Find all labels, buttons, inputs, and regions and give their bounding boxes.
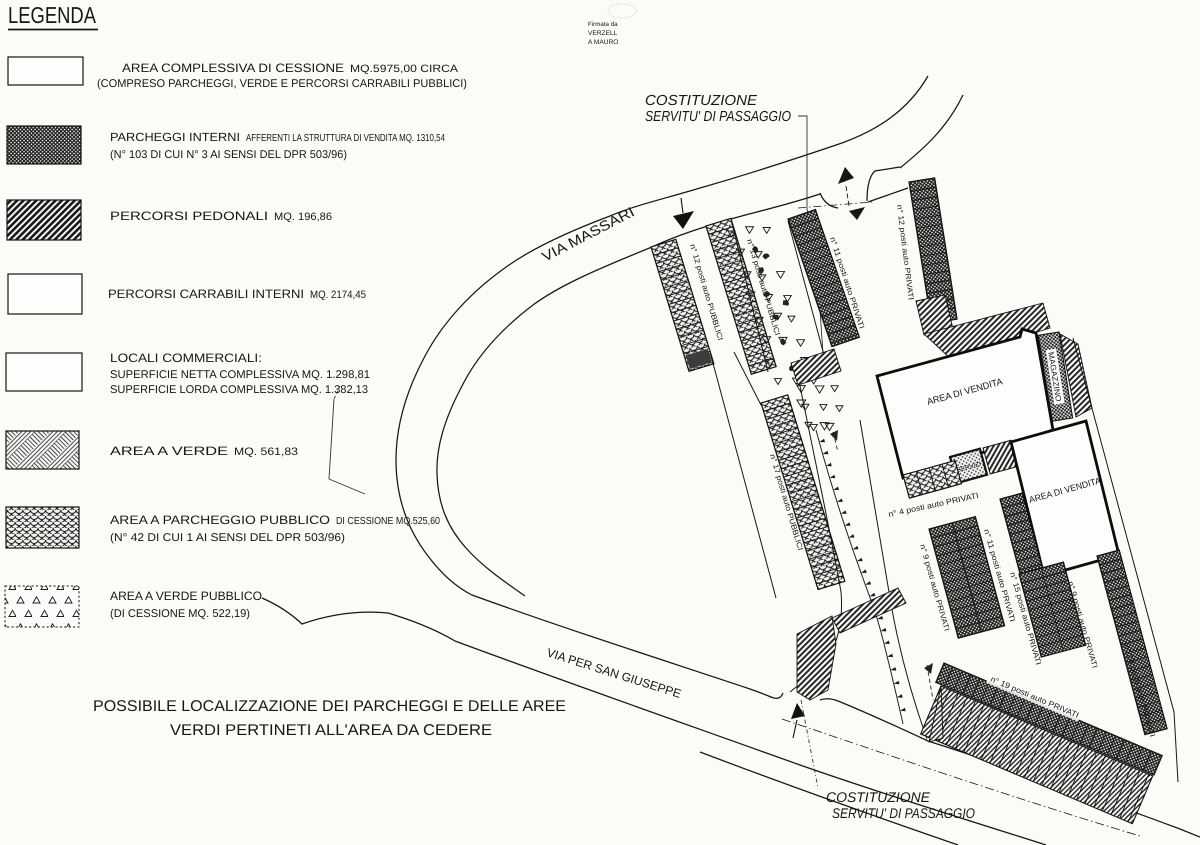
svg-text:MQ. 561,83: MQ. 561,83 [234, 446, 298, 458]
svg-text:SUPERFICIE NETTA COMPLESSIVA M: SUPERFICIE NETTA COMPLESSIVA MQ. 1.298,8… [110, 369, 370, 381]
svg-text:COSTITUZIONE: COSTITUZIONE [645, 93, 757, 109]
svg-text:LOCALI COMMERCIALI:: LOCALI COMMERCIALI: [110, 351, 262, 365]
svg-text:(COMPRESO PARCHEGGI, VERDE E P: (COMPRESO PARCHEGGI, VERDE E PERCORSI CA… [97, 78, 467, 90]
svg-text:PARCHEGGI INTERNI: PARCHEGGI INTERNI [110, 130, 240, 144]
svg-text:(DI CESSIONE MQ. 522,19): (DI CESSIONE MQ. 522,19) [110, 608, 250, 620]
svg-text:POSSIBILE LOCALIZZAZIONE DEI P: POSSIBILE LOCALIZZAZIONE DEI PARCHEGGI E… [93, 698, 566, 715]
svg-text:MQ. 2174,45: MQ. 2174,45 [310, 289, 366, 301]
svg-text:AREA A PARCHEGGIO PUBBLICO: AREA A PARCHEGGIO PUBBLICO [110, 513, 330, 527]
svg-text:(N° 103 DI CUI N° 3 AI SENSI D: (N° 103 DI CUI N° 3 AI SENSI DEL DPR 503… [110, 149, 347, 161]
svg-text:VERDI PERTINETI ALL'AREA DA CE: VERDI PERTINETI ALL'AREA DA CEDERE [170, 722, 492, 739]
svg-text:Firmata da: Firmata da [588, 21, 618, 28]
svg-text:LEGENDA: LEGENDA [8, 2, 97, 28]
svg-text:AFFERENTI LA STRUTTURA DI VEND: AFFERENTI LA STRUTTURA DI VENDITA MQ. 13… [246, 133, 445, 144]
svg-text:SERVITU' DI PASSAGGIO: SERVITU' DI PASSAGGIO [832, 805, 975, 821]
svg-text:AREA COMPLESSIVA DI CESSIONE: AREA COMPLESSIVA DI CESSIONE [122, 61, 344, 75]
svg-text:AREA A VERDE PUBBLICO: AREA A VERDE PUBBLICO [110, 589, 262, 603]
svg-text:SUPERFICIE LORDA COMPLESSIVA M: SUPERFICIE LORDA COMPLESSIVA MQ. 1.382,1… [110, 384, 368, 396]
svg-text:SERVITU' DI PASSAGGIO: SERVITU' DI PASSAGGIO [645, 109, 791, 125]
svg-text:VERZELL: VERZELL [588, 30, 618, 37]
svg-text:DI CESSIONE MQ.525,60: DI CESSIONE MQ.525,60 [336, 516, 440, 527]
svg-text:PERCORSI PEDONALI: PERCORSI PEDONALI [110, 209, 268, 223]
svg-text:AREA A VERDE: AREA A VERDE [110, 444, 228, 458]
svg-text:A MAURO: A MAURO [588, 39, 618, 46]
svg-text:COSTITUZIONE: COSTITUZIONE [826, 789, 931, 805]
svg-text:MQ.5975,00 CIRCA: MQ.5975,00 CIRCA [350, 63, 459, 75]
svg-text:(N° 42 DI CUI 1 AI SENSI DEL D: (N° 42 DI CUI 1 AI SENSI DEL DPR 503/96) [110, 532, 345, 544]
svg-text:PERCORSI CARRABILI INTERNI: PERCORSI CARRABILI INTERNI [108, 287, 304, 301]
svg-text:MQ. 196,86: MQ. 196,86 [274, 211, 332, 223]
